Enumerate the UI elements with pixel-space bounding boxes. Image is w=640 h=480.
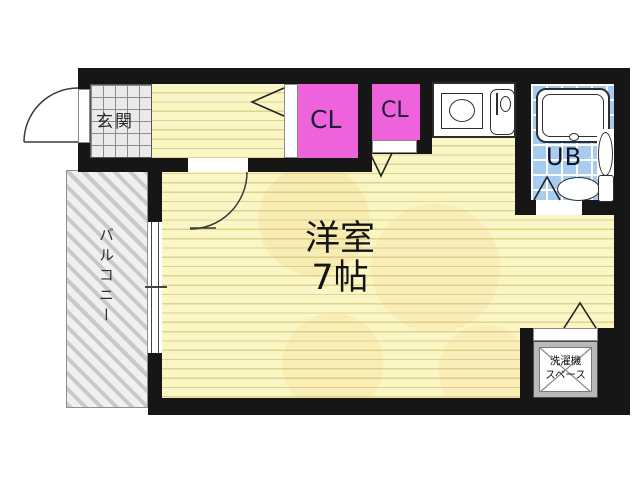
- wall-laundry-right: [598, 328, 616, 400]
- wall-kitchen-bath: [515, 68, 531, 215]
- faucet: [496, 93, 498, 115]
- bath-door-opening: [536, 200, 582, 215]
- closet2-label: CL: [381, 98, 409, 123]
- laundry-label-line1: 洗濯機: [533, 355, 598, 369]
- stove-icon: [441, 93, 483, 129]
- floor-plan: 玄関 CL CL UB 洋室 7帖 バルコニー 洗濯機 スペース: [0, 0, 640, 480]
- kitchen-counter: [432, 82, 516, 138]
- room-door-opening: [188, 158, 248, 172]
- bath-label: UB: [546, 143, 582, 171]
- wall-closet-divider: [358, 84, 372, 172]
- toilet-tank: [598, 175, 614, 202]
- washbasin-icon: [598, 132, 613, 176]
- closet2-door: [372, 140, 417, 153]
- entrance-label: 玄関: [96, 107, 134, 132]
- bathtub-inner: [542, 94, 604, 137]
- kitchen-sink-icon: [490, 89, 515, 135]
- closet1-label: CL: [310, 105, 341, 134]
- wall-top: [78, 68, 630, 84]
- balcony-label: バルコニー: [96, 227, 117, 327]
- closet1-door: [284, 84, 298, 158]
- wall-closet2-right: [420, 84, 432, 154]
- wall-laundry-left: [520, 328, 533, 400]
- main-room-name: 洋室: [250, 220, 430, 259]
- main-room-size: 7帖: [250, 259, 430, 298]
- window-center-tick: [145, 286, 167, 288]
- laundry-label-line2: スペース: [533, 369, 598, 383]
- wall-right: [614, 68, 630, 415]
- bathtub-drain: [569, 133, 579, 141]
- stove-burner: [449, 99, 475, 122]
- sink-bowl: [500, 96, 511, 112]
- laundry-label: 洗濯機 スペース: [533, 355, 598, 382]
- toilet-icon: [557, 177, 600, 201]
- laundry-door-opening: [533, 328, 598, 341]
- entrance-door-swing-icon: [24, 88, 78, 142]
- wall-bottom: [148, 398, 630, 415]
- main-room-label: 洋室 7帖: [250, 220, 430, 298]
- entrance-door-leaf: [78, 89, 90, 143]
